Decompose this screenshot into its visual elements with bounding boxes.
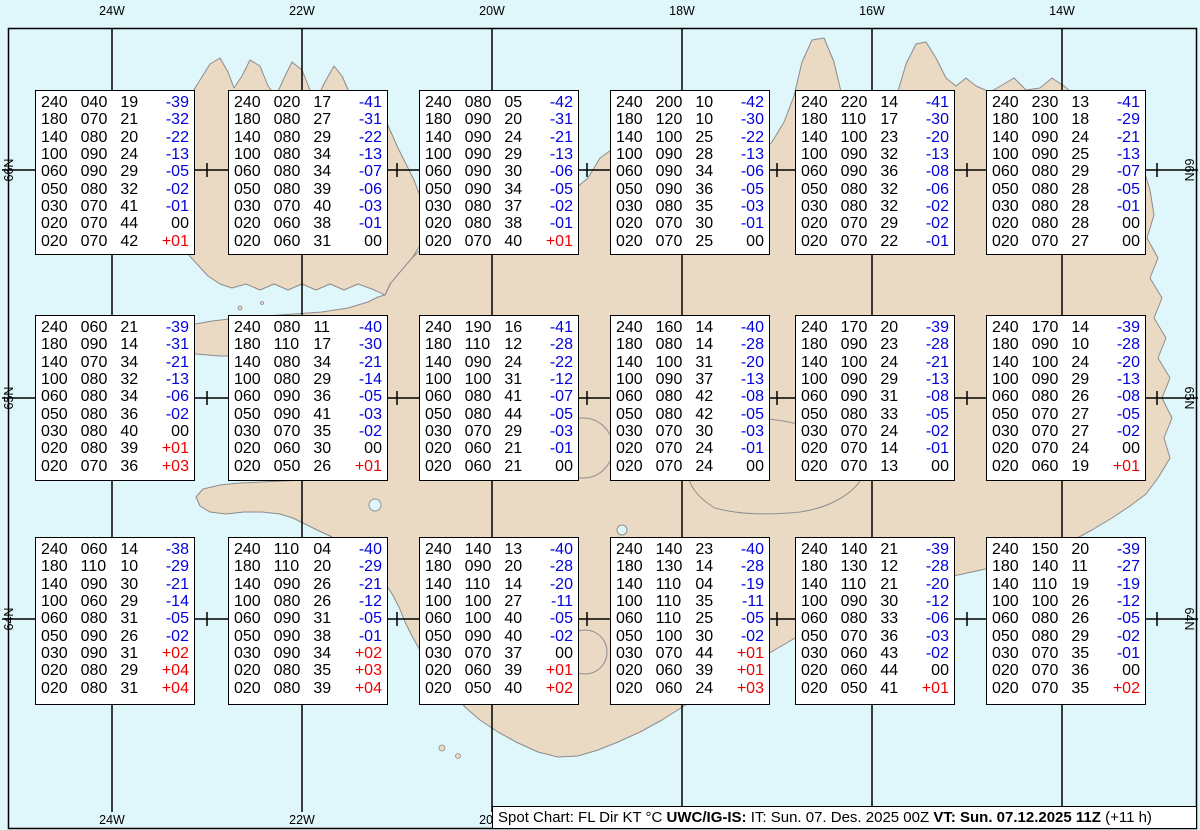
wind-dir-value: 070 [81,458,114,475]
wind-dir-value: 090 [841,388,874,405]
flight-level-value: 020 [41,440,74,457]
wind-dir-value: 050 [841,680,874,697]
station-box-r2c3: 24019016-4118011012-2814009024-221001003… [419,315,579,481]
wind-dir-value: 090 [841,593,874,610]
wind-speed-value: 34 [504,181,529,198]
station-data-row: 02007024-01 [611,440,769,457]
wind-dir-value: 070 [81,111,114,128]
flight-level-value: 140 [616,129,649,146]
flight-level-value: 140 [41,129,74,146]
flight-level-value: 180 [234,558,267,575]
wind-speed-value: 37 [695,371,720,388]
wind-dir-value: 140 [656,541,689,558]
flight-level-value: 060 [234,163,267,180]
wind-dir-value: 080 [81,406,114,423]
station-data-row: 10008032-13 [36,371,194,388]
wind-speed-value: 21 [504,458,529,475]
station-data-row: 05009041-03 [229,406,387,423]
temperature-value: +01 [345,458,382,475]
wind-speed-value: 25 [695,610,720,627]
wind-speed-value: 36 [120,406,145,423]
temperature-value: +01 [1103,458,1140,475]
station-box-r1c2: 24002017-4118008027-3114008029-221000803… [228,90,388,255]
station-box-r2c2: 24008011-4018011017-3014008034-211000802… [228,315,388,481]
station-box-r1c5: 24022014-4118011017-3014010023-201000903… [795,90,955,255]
station-data-row: 18009020-31 [420,111,578,128]
temperature-value: -05 [912,406,949,423]
station-data-row: 0200702500 [611,233,769,250]
wind-dir-value: 080 [81,662,114,679]
temperature-value: -42 [536,94,573,111]
flight-level-value: 140 [801,576,834,593]
temperature-value: -39 [152,319,189,336]
station-data-row: 14008034-21 [229,354,387,371]
wind-speed-value: 40 [504,680,529,697]
temperature-value: -06 [727,163,764,180]
wind-dir-value: 070 [1032,423,1065,440]
temperature-value: +03 [727,680,764,697]
temperature-value: -06 [912,181,949,198]
flight-level-value: 140 [41,576,74,593]
temperature-value: -01 [727,215,764,232]
temperature-value: -05 [1103,610,1140,627]
station-data-row: 06008026-08 [987,388,1145,405]
station-data-row: 24014021-39 [796,541,954,558]
temperature-value: -42 [727,94,764,111]
station-data-row: 10008034-13 [229,146,387,163]
temperature-value: -40 [345,541,382,558]
flight-level-value: 100 [616,593,649,610]
flight-level-value: 100 [41,146,74,163]
wind-dir-value: 230 [1032,94,1065,111]
wind-dir-value: 020 [274,94,307,111]
wind-speed-value: 14 [695,558,720,575]
flight-level-value: 060 [425,610,458,627]
station-data-row: 02006039+01 [420,662,578,679]
temperature-value: -41 [1103,94,1140,111]
wind-dir-value: 170 [841,319,874,336]
station-data-row: 02007042+01 [36,233,194,250]
wind-speed-value: 30 [695,423,720,440]
thingvallavatn-lake [369,499,381,511]
flight-level-value: 060 [425,388,458,405]
wind-speed-value: 20 [313,558,338,575]
station-data-row: 05008036-02 [36,406,194,423]
flight-level-value: 180 [616,111,649,128]
station-data-row: 24019016-41 [420,319,578,336]
wind-speed-value: 30 [504,163,529,180]
wind-speed-value: 36 [880,628,905,645]
temperature-value: 00 [536,458,573,475]
wind-dir-value: 080 [1032,215,1065,232]
temperature-value: -13 [536,146,573,163]
wind-speed-value: 29 [1071,628,1096,645]
flight-level-value: 180 [234,111,267,128]
wind-dir-value: 090 [465,628,498,645]
wind-speed-value: 14 [880,440,905,457]
station-data-row: 05008042-05 [611,406,769,423]
wind-dir-value: 070 [656,215,689,232]
temperature-value: -01 [912,440,949,457]
wind-speed-value: 23 [880,336,905,353]
temperature-value: -11 [727,593,764,610]
flight-level-value: 180 [425,336,458,353]
station-data-row: 05008032-02 [36,181,194,198]
station-data-row: 02006039+01 [611,662,769,679]
temperature-value: -13 [1103,146,1140,163]
station-data-row: 24006014-38 [36,541,194,558]
station-box-r2c1: 24006021-3918009014-3114007034-211000803… [35,315,195,481]
flight-level-value: 020 [234,215,267,232]
wind-dir-value: 080 [81,423,114,440]
wind-dir-value: 090 [656,163,689,180]
station-data-row: 0200702400 [611,458,769,475]
wind-dir-value: 090 [274,645,307,662]
station-data-row: 24004019-39 [36,94,194,111]
wind-dir-value: 080 [841,610,874,627]
flight-level-value: 060 [616,163,649,180]
station-data-row: 24011004-40 [229,541,387,558]
wind-speed-value: 26 [1071,610,1096,627]
temperature-value: -13 [152,371,189,388]
temperature-value: -02 [727,628,764,645]
temperature-value: -06 [536,163,573,180]
station-data-row: 02007035+02 [987,680,1145,697]
temperature-value: -28 [727,336,764,353]
wind-speed-value: 35 [313,662,338,679]
station-data-row: 02008039+04 [229,680,387,697]
wind-speed-value: 40 [504,233,529,250]
flight-level-value: 240 [992,541,1025,558]
wind-speed-value: 27 [1071,233,1096,250]
station-data-row: 03007027-02 [987,423,1145,440]
flight-level-value: 050 [801,406,834,423]
station-data-row: 14010024-20 [987,354,1145,371]
station-data-row: 10009025-13 [987,146,1145,163]
flight-level-value: 030 [234,645,267,662]
temperature-value: -01 [1103,645,1140,662]
wind-dir-value: 070 [274,198,307,215]
flight-level-value: 240 [992,94,1025,111]
wind-dir-value: 110 [465,336,498,353]
flight-level-value: 060 [801,163,834,180]
temperature-value: -03 [345,406,382,423]
station-box-r1c6: 24023013-4118010018-2914009024-211000902… [986,90,1146,255]
temperature-value: -13 [727,146,764,163]
wind-speed-value: 21 [880,576,905,593]
wind-speed-value: 42 [120,233,145,250]
wind-speed-value: 29 [120,593,145,610]
station-data-row: 18009014-31 [36,336,194,353]
station-data-row: 05009034-05 [420,181,578,198]
station-data-row: 05008028-05 [987,181,1145,198]
temperature-value: -28 [1103,336,1140,353]
wind-speed-value: 29 [504,146,529,163]
station-data-row: 02008035+03 [229,662,387,679]
flight-level-value: 020 [234,440,267,457]
temperature-value: -12 [345,593,382,610]
wind-dir-value: 100 [465,593,498,610]
wind-speed-value: 28 [695,146,720,163]
wind-dir-value: 090 [1032,371,1065,388]
station-data-row: 18009010-28 [987,336,1145,353]
flight-level-value: 240 [41,94,74,111]
station-box-r2c5: 24017020-3918009023-2814010024-211000902… [795,315,955,481]
flight-level-value: 240 [41,541,74,558]
wind-speed-value: 31 [120,610,145,627]
temperature-value: +03 [152,458,189,475]
wind-speed-value: 24 [1071,129,1096,146]
flight-level-value: 030 [234,423,267,440]
station-data-row: 06009034-06 [611,163,769,180]
wind-speed-value: 30 [695,215,720,232]
wind-speed-value: 35 [313,423,338,440]
wind-speed-value: 34 [313,146,338,163]
station-data-row: 0200704400 [36,215,194,232]
flight-level-value: 140 [425,354,458,371]
temperature-value: -19 [727,576,764,593]
flight-level-value: 240 [234,319,267,336]
temperature-value: -02 [1103,628,1140,645]
temperature-value: -39 [1103,319,1140,336]
station-data-row: 02005026+01 [229,458,387,475]
flight-level-value: 050 [616,181,649,198]
wind-speed-value: 34 [313,354,338,371]
wind-dir-value: 050 [465,680,498,697]
station-box-r3c2: 24011004-4018011020-2914009026-211000802… [228,537,388,705]
wind-dir-value: 080 [274,371,307,388]
spot-chart-stage: 24004019-3918007021-3214008020-221000902… [0,0,1200,830]
flight-level-value: 060 [41,610,74,627]
wind-speed-value: 30 [313,440,338,457]
wind-speed-value: 26 [1071,388,1096,405]
temperature-value: -01 [536,440,573,457]
wind-dir-value: 060 [81,541,114,558]
wind-speed-value: 35 [1071,645,1096,662]
station-data-row: 18011020-29 [229,558,387,575]
flight-level-value: 020 [234,458,267,475]
temperature-value: -22 [727,129,764,146]
flight-level-value: 180 [801,111,834,128]
station-data-row: 18008014-28 [611,336,769,353]
wind-dir-value: 090 [656,371,689,388]
temperature-value: +02 [1103,680,1140,697]
temperature-value: -07 [536,388,573,405]
wind-dir-value: 080 [465,406,498,423]
flight-level-value: 240 [425,319,458,336]
station-data-row: 10009029-13 [796,371,954,388]
station-data-row: 05007036-03 [796,628,954,645]
station-data-row: 06009036-08 [796,163,954,180]
wind-dir-value: 070 [81,215,114,232]
flight-level-value: 020 [616,233,649,250]
wind-speed-value: 32 [880,198,905,215]
flight-level-value: 100 [425,593,458,610]
wind-speed-value: 41 [880,680,905,697]
wind-dir-value: 080 [81,610,114,627]
flight-level-value: 240 [234,94,267,111]
wind-dir-value: 080 [1032,628,1065,645]
station-data-row: 18009020-28 [420,558,578,575]
wind-speed-value: 26 [1071,593,1096,610]
station-data-row: 05009026-02 [36,628,194,645]
wind-speed-value: 33 [880,610,905,627]
wind-dir-value: 060 [465,662,498,679]
temperature-value: +02 [536,680,573,697]
temperature-value: 00 [727,233,764,250]
flight-level-value: 020 [234,680,267,697]
station-data-row: 06009031-08 [796,388,954,405]
wind-speed-value: 36 [120,458,145,475]
station-data-row: 03007044+01 [611,645,769,662]
temperature-value: -31 [536,111,573,128]
station-data-row: 14009030-21 [36,576,194,593]
temperature-value: -03 [727,423,764,440]
wind-dir-value: 090 [274,406,307,423]
temperature-value: -21 [345,354,382,371]
station-data-row: 03008028-01 [987,198,1145,215]
temperature-value: -21 [536,129,573,146]
flight-level-value: 140 [41,354,74,371]
wind-dir-value: 090 [81,163,114,180]
station-data-row: 0200802800 [987,215,1145,232]
wind-speed-value: 18 [1071,111,1096,128]
temperature-value: -02 [912,215,949,232]
station-data-row: 0300804000 [36,423,194,440]
wind-speed-value: 38 [313,215,338,232]
temperature-value: -21 [1103,129,1140,146]
wind-speed-value: 17 [313,336,338,353]
flight-level-value: 060 [425,163,458,180]
flight-level-value: 050 [41,406,74,423]
flight-level-value: 100 [616,146,649,163]
parallel-label-right-65N: 65N [1182,387,1196,410]
wind-dir-value: 120 [656,111,689,128]
flight-level-value: 060 [41,388,74,405]
station-data-row: 18013012-28 [796,558,954,575]
flight-level-value: 100 [234,146,267,163]
flight-level-value: 030 [992,198,1025,215]
wind-dir-value: 080 [841,406,874,423]
station-data-row: 18008027-31 [229,111,387,128]
station-data-row: 03009034+02 [229,645,387,662]
flight-level-value: 140 [616,354,649,371]
wind-dir-value: 060 [274,233,307,250]
wind-speed-value: 42 [695,388,720,405]
station-data-row: 18011017-30 [796,111,954,128]
flight-level-value: 050 [616,628,649,645]
station-box-r3c6: 24015020-3918014011-2714011019-191001002… [986,537,1146,705]
wind-speed-value: 34 [120,388,145,405]
wind-speed-value: 29 [880,215,905,232]
wind-dir-value: 100 [656,354,689,371]
wind-dir-value: 150 [1032,541,1065,558]
flight-level-value: 030 [234,198,267,215]
wind-speed-value: 32 [880,181,905,198]
wind-speed-value: 40 [313,198,338,215]
wind-dir-value: 060 [841,662,874,679]
wind-speed-value: 26 [313,593,338,610]
flight-level-value: 100 [234,371,267,388]
wind-dir-value: 110 [656,576,689,593]
flight-level-value: 050 [425,628,458,645]
wind-speed-value: 29 [880,371,905,388]
wind-dir-value: 110 [81,558,114,575]
wind-dir-value: 070 [841,440,874,457]
temperature-value: -39 [912,541,949,558]
station-box-r3c5: 24014021-3918013012-2814011021-201000903… [795,537,955,705]
footer-offset: (+11 h) [1101,809,1152,826]
wind-dir-value: 080 [465,388,498,405]
flight-level-value: 140 [425,576,458,593]
flight-level-value: 100 [801,146,834,163]
meridian-label-top-24W: 24W [99,4,125,18]
station-data-row: 0300703700 [420,645,578,662]
wind-speed-value: 29 [504,423,529,440]
wind-dir-value: 100 [465,610,498,627]
wind-dir-value: 070 [841,458,874,475]
temperature-value: -27 [1103,558,1140,575]
wind-speed-value: 25 [1071,146,1096,163]
wind-dir-value: 100 [656,628,689,645]
temperature-value: -05 [727,406,764,423]
station-data-row: 03007035-01 [987,645,1145,662]
temperature-value: 00 [345,233,382,250]
temperature-value: +01 [727,645,764,662]
island-dot [261,302,264,305]
flight-level-value: 060 [801,388,834,405]
wind-speed-value: 29 [1071,163,1096,180]
station-data-row: 03007029-03 [420,423,578,440]
flight-level-value: 140 [992,354,1025,371]
wind-speed-value: 04 [313,541,338,558]
temperature-value: -13 [912,146,949,163]
wind-dir-value: 170 [1032,319,1065,336]
temperature-value: -40 [727,319,764,336]
flight-level-value: 020 [801,440,834,457]
wind-dir-value: 080 [274,111,307,128]
wind-dir-value: 140 [1032,558,1065,575]
temperature-value: -22 [536,354,573,371]
wind-speed-value: 27 [504,593,529,610]
wind-speed-value: 12 [504,336,529,353]
station-box-r2c6: 24017014-3918009010-2814010024-201000902… [986,315,1146,481]
station-data-row: 10011035-11 [611,593,769,610]
flight-level-value: 240 [801,541,834,558]
wind-dir-value: 100 [841,354,874,371]
meridian-label-top-16W: 16W [859,4,885,18]
flight-level-value: 020 [616,440,649,457]
wind-dir-value: 110 [1032,576,1065,593]
wind-speed-value: 24 [695,680,720,697]
wind-speed-value: 30 [695,628,720,645]
wind-dir-value: 110 [274,541,307,558]
station-data-row: 03008037-02 [420,198,578,215]
wind-speed-value: 25 [695,233,720,250]
station-data-row: 24014023-40 [611,541,769,558]
flight-level-value: 060 [41,163,74,180]
flight-level-value: 100 [234,593,267,610]
wind-dir-value: 090 [656,146,689,163]
wind-dir-value: 110 [274,336,307,353]
station-data-row: 03008032-02 [796,198,954,215]
wind-dir-value: 070 [465,233,498,250]
wind-dir-value: 080 [274,354,307,371]
flight-level-value: 030 [801,198,834,215]
temperature-value: -08 [1103,388,1140,405]
flight-level-value: 060 [801,610,834,627]
temperature-value: -12 [1103,593,1140,610]
